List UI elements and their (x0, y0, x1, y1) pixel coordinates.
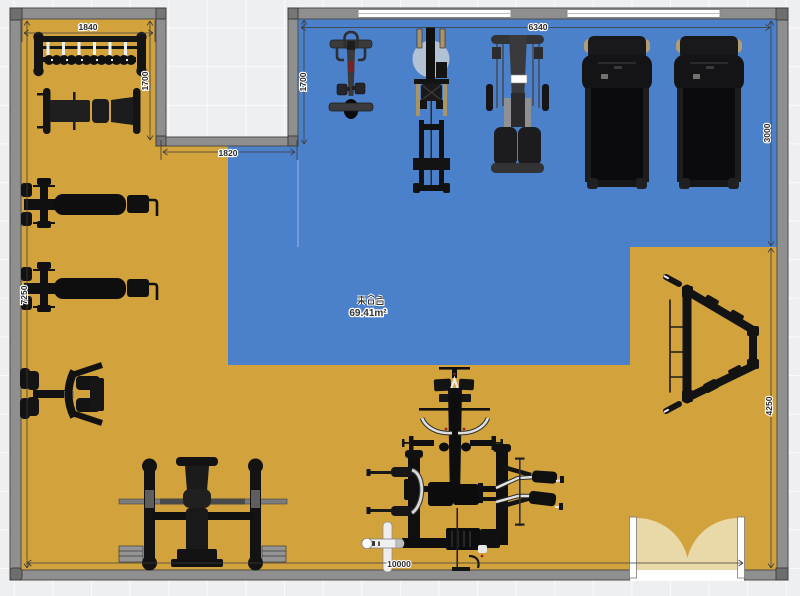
svg-text:1700: 1700 (298, 72, 308, 91)
svg-text:10000: 10000 (387, 559, 411, 569)
svg-text:1700: 1700 (140, 71, 150, 90)
svg-text:1840: 1840 (79, 22, 98, 32)
svg-text:4250: 4250 (764, 396, 774, 415)
svg-text:7250: 7250 (19, 285, 29, 304)
svg-text:69.41m²: 69.41m² (349, 308, 387, 319)
svg-text:3000: 3000 (762, 123, 772, 142)
svg-text:6340: 6340 (529, 22, 548, 32)
svg-text:1820: 1820 (219, 148, 238, 158)
